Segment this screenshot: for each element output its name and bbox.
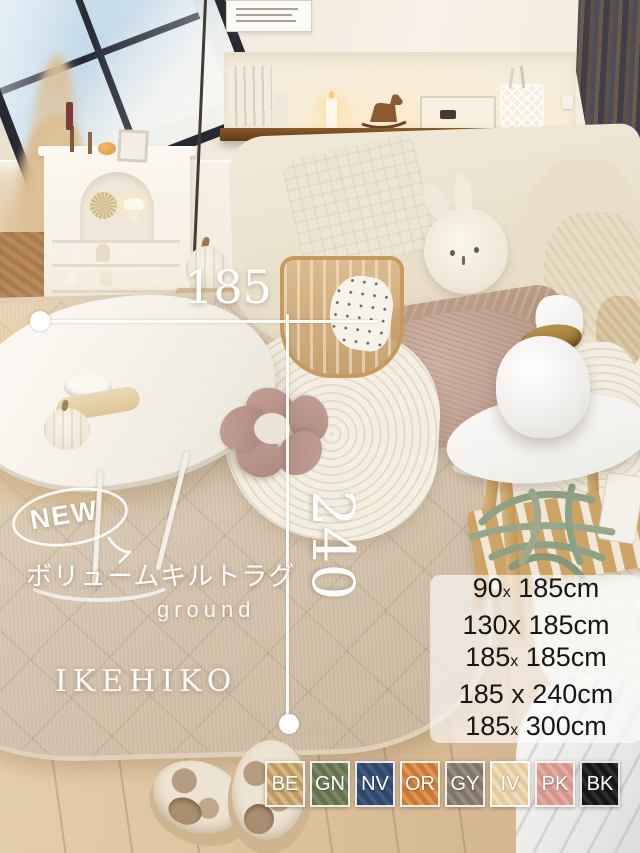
tissue-vase <box>496 336 590 438</box>
size-length: 240cm <box>525 679 614 709</box>
sign-text-line <box>236 8 298 10</box>
decor-vase <box>96 244 110 262</box>
size-row: 90x 185cm <box>430 572 640 609</box>
size-width: 185 <box>465 642 510 672</box>
size-x: x <box>508 610 522 640</box>
decor-bottle <box>122 248 132 262</box>
size-row: 130x 185cm <box>430 609 640 641</box>
cabinet-shelf <box>52 240 180 243</box>
color-swatch-row: BE GN NV OR GY IV PK BK <box>265 761 620 807</box>
size-x: x <box>511 679 525 709</box>
size-width: 185 <box>465 711 510 741</box>
wall-outlet <box>562 94 573 109</box>
size-row: 185x 185cm <box>430 641 640 678</box>
size-length: 300cm <box>518 711 607 741</box>
size-x: x <box>503 584 511 601</box>
color-swatch-bk: BK <box>580 761 620 807</box>
decor-vase <box>100 270 112 286</box>
size-row: 185x 300cm <box>430 710 640 747</box>
length-label: 240 <box>300 489 366 601</box>
color-swatch-nv: NV <box>355 761 395 807</box>
product-title-ja: ボリュームキルトラグ <box>26 556 295 593</box>
color-swatch-iv: IV <box>490 761 530 807</box>
length-measurement-line <box>286 314 289 718</box>
sign-text-line <box>236 14 292 16</box>
product-photo: 185 240 NEW ボリュームキルトラグ ground IKEHIKO 90… <box>0 0 640 853</box>
color-swatch-be: BE <box>265 761 305 807</box>
flower-cushion-center <box>254 413 290 444</box>
sign-text-line <box>236 20 296 22</box>
sunburst-ornament <box>88 190 119 221</box>
size-width: 185 <box>459 679 512 709</box>
candlestick <box>88 132 92 154</box>
taper-candle <box>66 102 73 130</box>
bunny-eyes <box>450 250 455 256</box>
bunny-nose <box>462 256 465 265</box>
bunny-cushion <box>424 208 508 294</box>
color-swatch-pk: PK <box>535 761 575 807</box>
decor-bottle <box>274 92 288 126</box>
size-row: 185 x 240cm <box>430 678 640 710</box>
white-pumpkin-decor <box>44 408 90 450</box>
decor-bottle <box>72 246 82 262</box>
size-width: 90 <box>473 573 503 603</box>
framed-sign <box>226 0 312 32</box>
size-width: 130 <box>462 610 507 640</box>
cabinet-shelf <box>52 264 180 267</box>
candle-flame <box>329 91 334 99</box>
color-swatch-gn: GN <box>310 761 350 807</box>
size-length: 185cm <box>511 573 600 603</box>
glass-display-box <box>420 96 496 132</box>
size-list-panel: 90x 185cm 130x 185cm 185x 185cm 185 x 24… <box>430 575 640 743</box>
size-length: 185cm <box>518 642 607 672</box>
small-picture-frame <box>117 129 149 163</box>
color-swatch-gy: GY <box>445 761 485 807</box>
decor-bottle <box>66 272 76 286</box>
length-measurement-dot <box>279 714 299 734</box>
mini-pumpkin <box>98 142 116 155</box>
size-length: 185cm <box>521 610 610 640</box>
books <box>227 66 272 127</box>
pillar-candle <box>326 98 337 128</box>
rocking-horse-toy <box>358 88 410 130</box>
width-measurement-line <box>40 320 378 323</box>
color-swatch-or: OR <box>400 761 440 807</box>
brand-logo: IKEHIKO <box>55 664 237 699</box>
series-label: ground <box>157 597 256 623</box>
mushroom-lamp-stem <box>130 209 138 221</box>
width-label: 185 <box>182 260 274 314</box>
cabinet-shelf <box>52 290 180 293</box>
display-box-item <box>440 110 456 119</box>
width-measurement-dot <box>30 311 50 331</box>
